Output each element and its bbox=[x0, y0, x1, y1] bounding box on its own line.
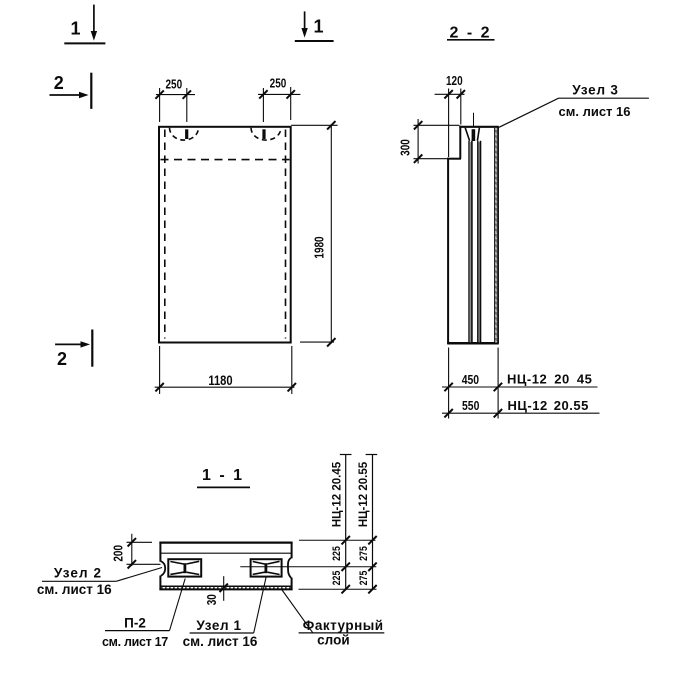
svg-text:1: 1 bbox=[313, 17, 323, 37]
svg-text:2: 2 bbox=[54, 73, 64, 93]
svg-text:225: 225 bbox=[331, 546, 343, 561]
svg-text:НЦ-12 20 45: НЦ-12 20 45 bbox=[507, 372, 592, 387]
svg-text:30: 30 bbox=[206, 594, 219, 605]
svg-text:120: 120 bbox=[446, 75, 463, 88]
svg-text:НЦ-12 20.55: НЦ-12 20.55 bbox=[358, 461, 370, 527]
svg-text:2: 2 bbox=[57, 349, 67, 369]
svg-text:1980: 1980 bbox=[314, 236, 327, 258]
svg-text:НЦ-12 20.45: НЦ-12 20.45 bbox=[332, 461, 344, 527]
svg-text:НЦ-12 20.55: НЦ-12 20.55 bbox=[508, 398, 589, 413]
svg-text:225: 225 bbox=[331, 570, 343, 585]
svg-text:550: 550 bbox=[462, 399, 480, 413]
svg-text:П-2: П-2 bbox=[124, 616, 146, 631]
svg-text:1180: 1180 bbox=[208, 373, 232, 388]
svg-text:Узел 3: Узел 3 bbox=[572, 82, 618, 97]
svg-text:1: 1 bbox=[70, 19, 80, 39]
svg-text:см. лист 16: см. лист 16 bbox=[559, 104, 631, 119]
svg-text:слой: слой bbox=[317, 632, 349, 647]
svg-text:250: 250 bbox=[270, 77, 287, 90]
svg-text:275: 275 bbox=[358, 546, 370, 561]
svg-text:200: 200 bbox=[113, 545, 126, 562]
svg-text:см. лист 16: см. лист 16 bbox=[37, 582, 112, 597]
svg-text:Фактурный: Фактурный bbox=[303, 618, 384, 633]
svg-text:Узел 1: Узел 1 bbox=[196, 618, 241, 633]
svg-text:1 - 1: 1 - 1 bbox=[202, 467, 244, 484]
svg-text:см. лист 16: см. лист 16 bbox=[183, 634, 258, 649]
svg-text:см. лист 17: см. лист 17 bbox=[102, 635, 168, 649]
svg-text:275: 275 bbox=[358, 570, 370, 585]
svg-text:Узел 2: Узел 2 bbox=[54, 566, 102, 581]
svg-text:250: 250 bbox=[165, 78, 182, 91]
svg-text:300: 300 bbox=[400, 139, 413, 156]
svg-text:450: 450 bbox=[462, 373, 480, 387]
